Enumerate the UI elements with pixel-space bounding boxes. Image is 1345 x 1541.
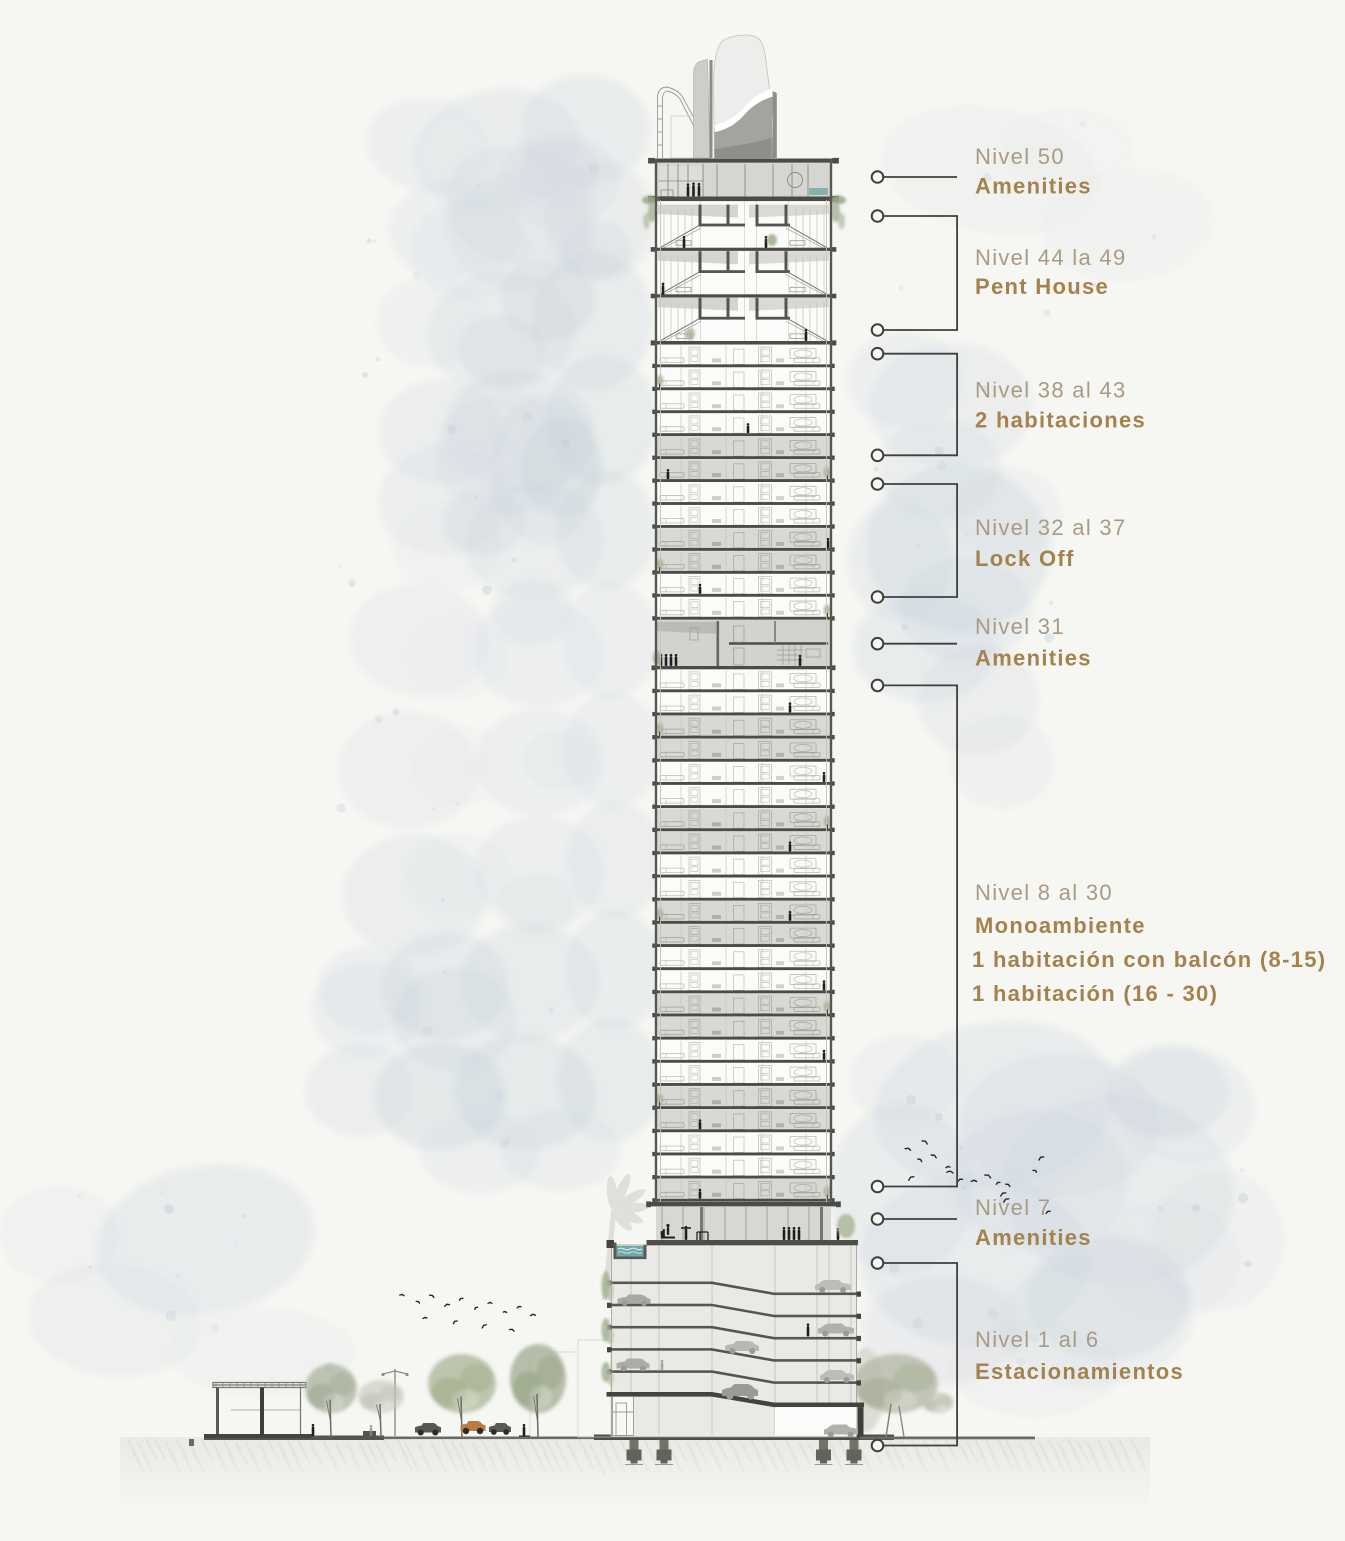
svg-text:Nivel 7: Nivel 7 bbox=[975, 1195, 1051, 1220]
svg-text:Pent House: Pent House bbox=[975, 274, 1109, 299]
svg-text:Nivel 31: Nivel 31 bbox=[975, 614, 1065, 639]
svg-text:Nivel 8 al 30: Nivel 8 al 30 bbox=[975, 880, 1113, 905]
svg-text:Monoambiente: Monoambiente bbox=[975, 913, 1146, 938]
svg-text:Amenities: Amenities bbox=[975, 1225, 1092, 1250]
svg-text:Lock Off: Lock Off bbox=[975, 546, 1075, 571]
svg-text:Estacionamientos: Estacionamientos bbox=[975, 1359, 1184, 1384]
svg-text:Amenities: Amenities bbox=[975, 646, 1092, 671]
svg-text:Amenities: Amenities bbox=[975, 174, 1092, 199]
svg-text:Nivel 32 al 37: Nivel 32 al 37 bbox=[975, 515, 1127, 540]
svg-text:Nivel 44 la 49: Nivel 44 la 49 bbox=[975, 245, 1127, 270]
svg-text:Nivel 50: Nivel 50 bbox=[975, 144, 1065, 169]
svg-text:2 habitaciones: 2 habitaciones bbox=[975, 408, 1146, 433]
svg-text:1 habitación con balcón (8-15): 1 habitación con balcón (8-15) bbox=[972, 947, 1326, 972]
svg-text:Nivel 38 al 43: Nivel 38 al 43 bbox=[975, 378, 1127, 403]
svg-text:1 habitación (16 - 30): 1 habitación (16 - 30) bbox=[972, 981, 1218, 1006]
svg-text:Nivel 1 al 6: Nivel 1 al 6 bbox=[975, 1327, 1099, 1352]
